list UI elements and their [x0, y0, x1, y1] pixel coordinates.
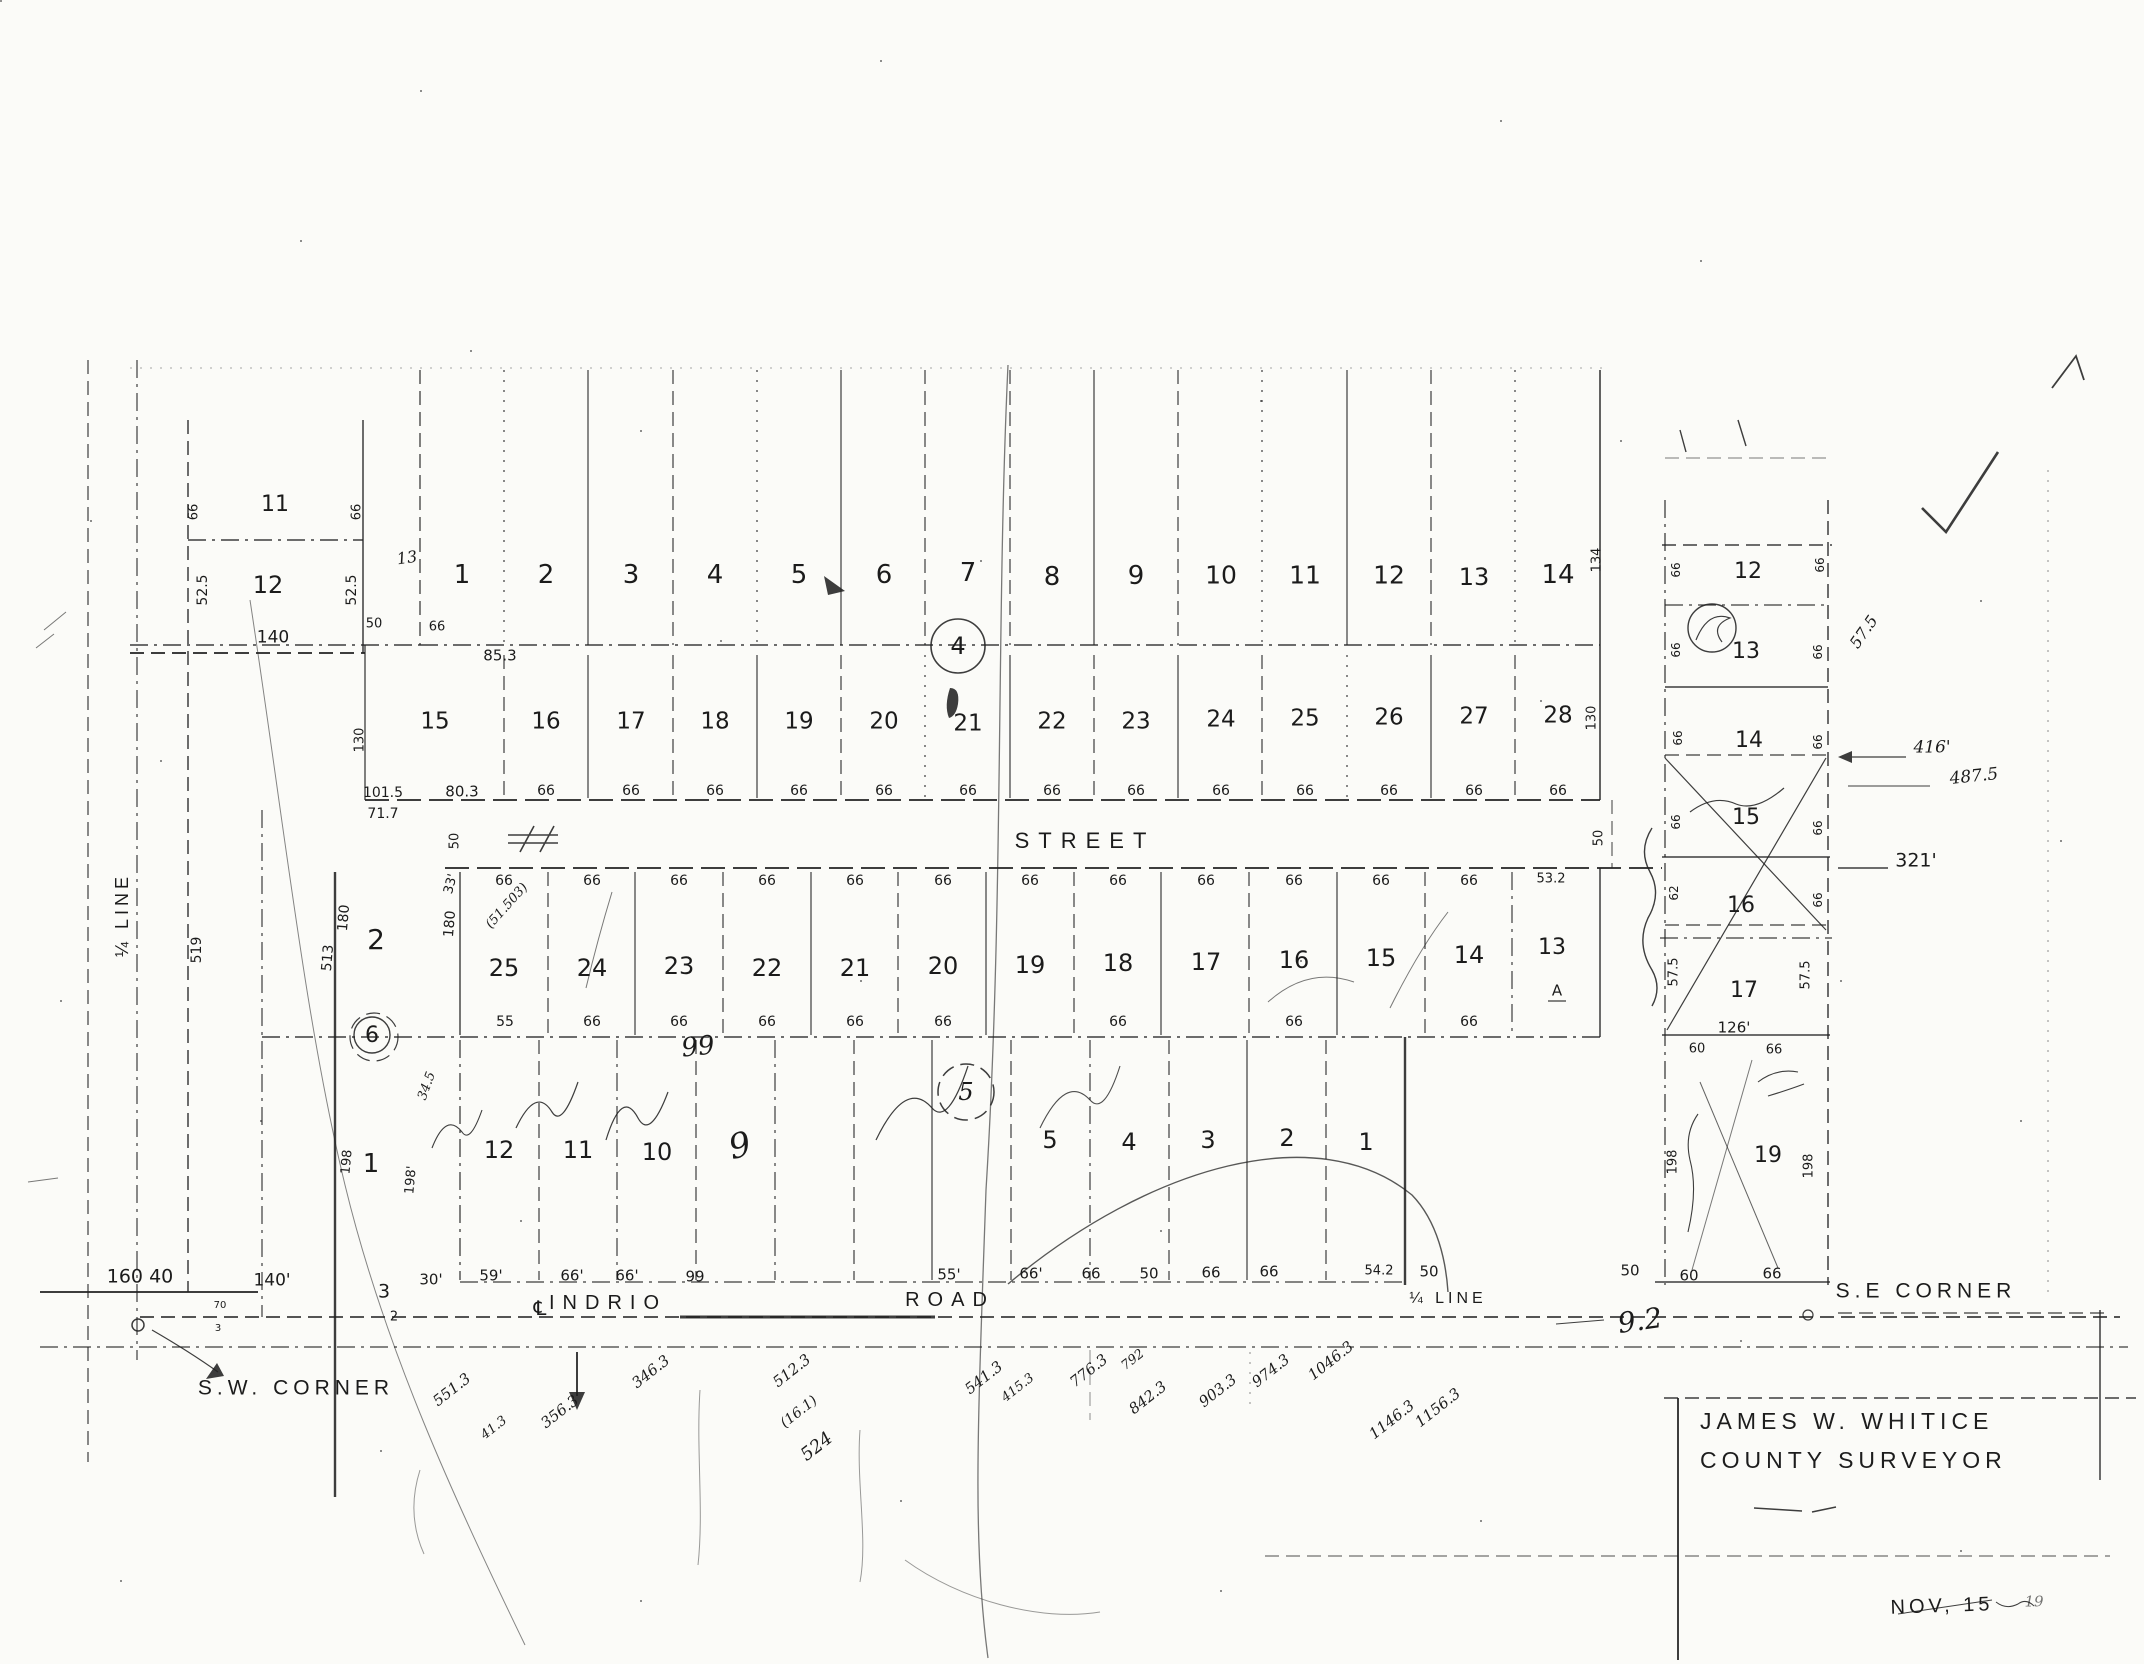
map-label: 66 — [1812, 892, 1824, 907]
lot-number: 16 — [531, 711, 560, 734]
lot-number: 14 — [1541, 562, 1574, 588]
lot-number: 20 — [928, 954, 959, 978]
map-label: 66 — [934, 874, 952, 888]
map-label: 66 — [622, 784, 640, 798]
survey-date: NOV, 15 — [1890, 1594, 1994, 1618]
map-label: 3 — [378, 1283, 390, 1302]
map-label: 180 — [336, 904, 352, 932]
map-label: 140' — [253, 1273, 290, 1290]
map-label: 66 — [670, 1015, 688, 1029]
pointer-line — [152, 1330, 218, 1372]
map-label: 126' — [1718, 1021, 1751, 1036]
surveyor-name: JAMES W. WHITICE — [1700, 1408, 2007, 1435]
scan-crease — [859, 1430, 863, 1582]
map-label: 66 — [758, 874, 776, 888]
lot-number: 26 — [1374, 707, 1403, 730]
se-corner-label: S.E CORNER — [1836, 1281, 2017, 1302]
lot-number: 16 — [1279, 948, 1310, 972]
map-label: 66 — [1670, 814, 1682, 829]
lot-number: 15 — [420, 711, 449, 734]
lot-number: 19 — [784, 711, 813, 734]
map-label: 62 — [1668, 885, 1680, 900]
scan-crease — [250, 600, 525, 1645]
lot-number: 10 — [1205, 563, 1237, 588]
map-label: 66 — [959, 784, 977, 798]
map-label: 198 — [1667, 1150, 1680, 1175]
cursive-scribble — [876, 1066, 968, 1140]
lot-number: 21 — [953, 713, 982, 736]
quarter-line-label: ¼ LINE — [1409, 1291, 1486, 1307]
map-label: 66 — [1201, 1266, 1220, 1281]
lot-number: 3 — [623, 562, 640, 588]
lot-number: 2 — [538, 562, 555, 588]
map-label: 66 — [429, 621, 446, 634]
surveyor-role: COUNTY SURVEYOR — [1700, 1447, 2007, 1474]
map-label: 52.5 — [196, 574, 210, 605]
map-label: 66 — [1814, 557, 1826, 572]
lot-number: 1 — [454, 562, 471, 588]
map-label: 50 — [1139, 1267, 1158, 1282]
map-label: 70 — [214, 1301, 227, 1311]
lot-number: 11 — [1289, 563, 1321, 588]
map-label: 66 — [670, 874, 688, 888]
map-label: 66 — [1670, 642, 1682, 657]
lot-number: 10 — [642, 1140, 673, 1164]
cursive-scribble — [1696, 616, 1730, 642]
scribble-circle — [1688, 604, 1736, 652]
scanned-survey-plat: 1234567891011121314151617181920212223242… — [0, 0, 2144, 1664]
corner-point — [132, 1319, 144, 1331]
stray-line — [1268, 977, 1354, 1002]
map-label: 60 — [1689, 1043, 1706, 1056]
street-label: STREET — [1015, 830, 1156, 852]
map-label: 66 — [1766, 1044, 1783, 1057]
map-label: 66 — [758, 1015, 776, 1029]
map-label: 50 — [1419, 1265, 1438, 1280]
lot-number: 2 — [1279, 1126, 1294, 1150]
map-label: 57.5 — [1668, 958, 1681, 987]
map-label: 55' — [937, 1268, 960, 1283]
stray-line — [1556, 1320, 1604, 1324]
lot-number: 12 — [484, 1138, 515, 1162]
lot-number: 15 — [1366, 946, 1397, 970]
map-label: 71.7 — [367, 807, 398, 821]
map-label: 66 — [351, 504, 364, 521]
map-label: 66' — [1019, 1267, 1042, 1282]
cursive-scribble — [1758, 1071, 1804, 1096]
map-label: 66 — [1762, 1267, 1781, 1282]
lot-number: 17 — [1191, 950, 1222, 974]
map-label: 59' — [479, 1269, 502, 1284]
lot-number: 14 — [1735, 730, 1763, 752]
map-label: 3 — [215, 1324, 221, 1334]
lot-number: 1 — [363, 1151, 380, 1177]
lot-letter: A — [1552, 984, 1562, 999]
map-label: 66 — [1372, 874, 1390, 888]
map-label: 66 — [1109, 1015, 1127, 1029]
map-label: 66 — [846, 1015, 864, 1029]
lot-number: 7 — [960, 560, 977, 586]
map-label: 66 — [583, 1015, 601, 1029]
map-label: 66 — [1285, 874, 1303, 888]
lot-number: 12 — [1734, 561, 1762, 583]
map-label: 513 — [320, 944, 336, 972]
lot-number: 18 — [1103, 951, 1134, 975]
map-label: 66 — [706, 784, 724, 798]
map-label: 52.5 — [345, 574, 359, 605]
lot-number: 17 — [1730, 980, 1758, 1002]
tick-mark — [1680, 420, 1746, 452]
map-label: 66 — [790, 784, 808, 798]
lot-number: 16 — [1727, 895, 1755, 917]
lot-number: 17 — [616, 711, 645, 734]
sw-corner-label: S.W. CORNER — [198, 1378, 394, 1399]
measurement: 99 — [680, 1032, 716, 1061]
lot-number: 19 — [1015, 953, 1046, 977]
cursive-scribble — [1040, 1066, 1120, 1128]
measurement: 416' — [1913, 740, 1950, 757]
map-label: 66 — [1127, 784, 1145, 798]
lot-number: 2 — [367, 926, 385, 954]
map-label: 54.2 — [1365, 1265, 1394, 1278]
map-label: 50 — [1620, 1264, 1639, 1279]
measurement: 487.5 — [1949, 766, 1999, 788]
lot-number: 4 — [707, 562, 724, 588]
station-number: 4 — [950, 634, 965, 658]
map-label: 66 — [495, 874, 513, 888]
lot-number: 15 — [1732, 807, 1760, 829]
indrio-road-label-left: INDRIO — [549, 1293, 667, 1313]
map-label: 50 — [366, 618, 383, 631]
map-label: 66 — [1296, 784, 1314, 798]
map-label: 66 — [1812, 734, 1824, 749]
map-label: 198 — [339, 1149, 354, 1175]
lot-number: 19 — [1754, 1145, 1782, 1167]
map-label: 66 — [1380, 784, 1398, 798]
check-mark — [2052, 356, 2084, 388]
lot-number: 23 — [1121, 711, 1150, 734]
map-label: 198' — [403, 1165, 418, 1194]
map-label: 130 — [1586, 706, 1599, 731]
measurement: 9.2 — [1616, 1304, 1664, 1338]
map-label: 50 — [449, 833, 462, 850]
indrio-road-label-right: ROAD — [905, 1290, 995, 1310]
lot-number: 25 — [489, 956, 520, 980]
lot-number: 5 — [1042, 1128, 1057, 1152]
map-label: 66' — [615, 1269, 638, 1284]
lot-number: 13 — [1538, 937, 1566, 959]
map-label: 66 — [875, 784, 893, 798]
quarter-line-vertical-label: ¼ LINE — [113, 873, 131, 957]
lot-number: 25 — [1290, 708, 1319, 731]
stray-line — [28, 1178, 58, 1182]
scan-crease — [698, 1390, 700, 1565]
signature-dash — [1754, 1507, 1836, 1512]
lot-number: 8 — [1044, 564, 1061, 590]
map-label: 66 — [1021, 874, 1039, 888]
map-label: 66 — [1212, 784, 1230, 798]
brace-mark — [1643, 828, 1657, 1006]
map-label: 53.2 — [1537, 873, 1566, 886]
lot-number: 4 — [1121, 1130, 1136, 1154]
map-label: 66 — [537, 784, 555, 798]
map-label: 66 — [1081, 1267, 1100, 1282]
map-label: 66 — [188, 504, 201, 521]
map-label: 99 — [685, 1270, 704, 1285]
lot-number: 6 — [876, 562, 893, 588]
station-number: 5 — [958, 1080, 973, 1104]
map-label: 60 — [1679, 1269, 1698, 1284]
survey-year-mark: 19 — [2024, 1595, 2043, 1610]
cursive-scribble — [606, 1092, 668, 1140]
map-label: 130 — [354, 728, 367, 753]
map-label: 66' — [560, 1269, 583, 1284]
corner-point — [1803, 1310, 1813, 1320]
centerline-symbol: ℄ — [534, 1298, 547, 1318]
lot-number: 23 — [664, 954, 695, 978]
map-label: 66 — [1812, 644, 1824, 659]
map-label: 66 — [934, 1015, 952, 1029]
stray-line — [1700, 1082, 1778, 1268]
scan-crease — [978, 365, 1008, 1658]
lot-number: 5 — [791, 562, 808, 588]
lot-number: 22 — [752, 956, 783, 980]
map-label: 66 — [1043, 784, 1061, 798]
lot-number: 27 — [1459, 706, 1488, 729]
map-label: 30' — [419, 1273, 442, 1288]
map-label: 2 — [390, 1311, 398, 1324]
map-label: 140 — [257, 630, 289, 647]
lot-number: 20 — [869, 711, 898, 734]
map-label: 134 — [1591, 548, 1604, 573]
scan-noise — [0, 0, 2, 2]
section-tick-symbol — [508, 826, 558, 852]
lot-number: 22 — [1037, 711, 1066, 734]
map-label: 66 — [1197, 874, 1215, 888]
map-label: 101.5 — [363, 786, 403, 800]
surveyor-title-block: JAMES W. WHITICE COUNTY SURVEYOR — [1700, 1408, 2007, 1486]
scan-crease — [414, 1470, 424, 1554]
map-label: 519 — [190, 937, 204, 964]
map-label: 66 — [1109, 874, 1127, 888]
ink-blot — [824, 576, 845, 595]
map-label: 55 — [496, 1015, 514, 1029]
cursive-scribble — [516, 1082, 578, 1128]
lot-number: 11 — [563, 1138, 594, 1162]
stray-line — [1692, 1060, 1752, 1270]
stray-line — [36, 612, 66, 648]
lot-number: 9 — [1128, 563, 1145, 589]
lot-number: 3 — [1200, 1128, 1215, 1152]
map-label: 66 — [583, 874, 601, 888]
map-label: 66 — [1672, 730, 1684, 745]
map-label: 66 — [1460, 1015, 1478, 1029]
stray-line — [1390, 912, 1448, 1008]
lot-number: 18 — [700, 711, 729, 734]
map-label: 57.5 — [1800, 961, 1813, 990]
map-label: 66 — [1465, 784, 1483, 798]
map-label: 66 — [1670, 562, 1682, 577]
check-mark — [1922, 452, 1998, 532]
map-label: 66 — [1812, 820, 1824, 835]
cursive-scribble — [432, 1110, 482, 1148]
lot-number: 13 — [1459, 565, 1490, 589]
station-number: 6 — [365, 1025, 379, 1047]
lot-number: 1 — [1358, 1130, 1373, 1154]
map-label: 180 — [442, 910, 458, 938]
lot-number: 14 — [1454, 943, 1485, 967]
map-label: 66 — [1285, 1015, 1303, 1029]
map-label: 85.3 — [483, 649, 516, 664]
lot-number: 11 — [261, 494, 289, 516]
map-label: 66 — [1259, 1265, 1278, 1280]
map-label: 66 — [1460, 874, 1478, 888]
lot-number: 24 — [1206, 709, 1235, 732]
map-label: 80.3 — [445, 785, 478, 800]
map-label: 160 40 — [107, 1268, 173, 1287]
cursive-scribble — [1688, 1114, 1698, 1232]
lot-number: 13 — [1732, 641, 1760, 663]
map-label: 50 — [1593, 830, 1606, 847]
map-label: 66 — [1549, 784, 1567, 798]
map-label: 66 — [846, 874, 864, 888]
scan-crease — [905, 1560, 1100, 1614]
lot-number: 24 — [577, 956, 608, 980]
arrowhead — [1838, 751, 1852, 763]
lot-number: 28 — [1543, 705, 1572, 728]
measurement: 321' — [1895, 852, 1937, 871]
lot-number: 21 — [840, 956, 871, 980]
annotation: 13 — [396, 549, 418, 568]
lot-number: 12 — [253, 573, 284, 597]
lot-number: 12 — [1373, 563, 1405, 588]
map-label: 198 — [1803, 1154, 1816, 1179]
